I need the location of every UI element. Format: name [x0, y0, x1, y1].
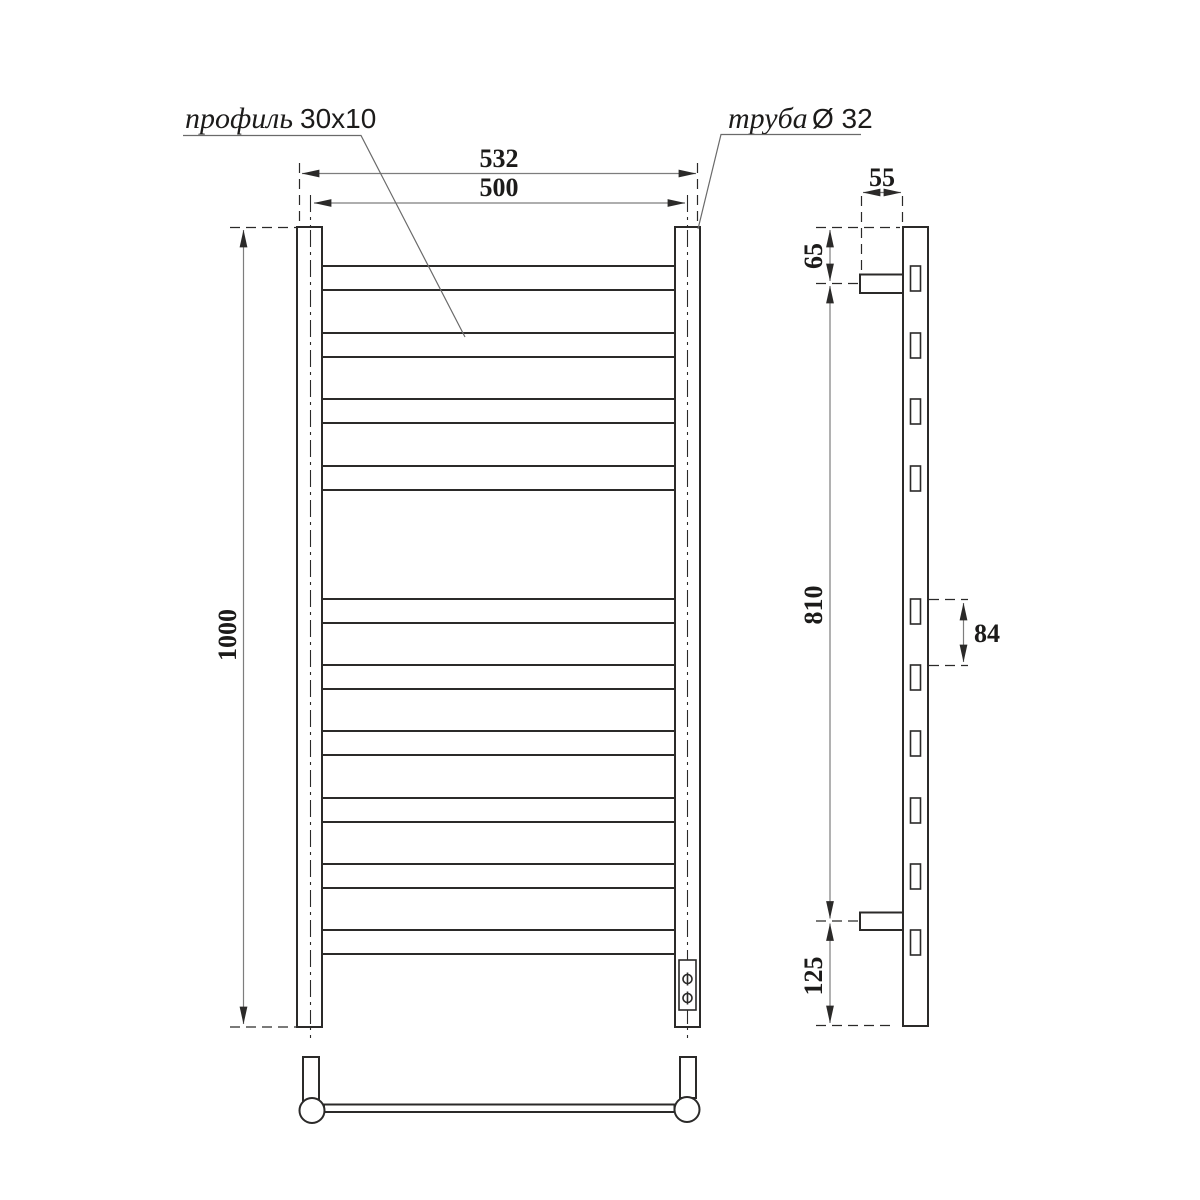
right-post-section: [675, 1097, 700, 1122]
dimension-height: 1000: [213, 228, 296, 1028]
dimension-value-65: 65: [799, 243, 828, 269]
bottom-view: [300, 1057, 700, 1123]
rung-group: [322, 266, 675, 954]
rung-slot: [911, 731, 921, 756]
dimension-value-55: 55: [869, 163, 895, 192]
leader-line-profile: [183, 136, 465, 338]
callout-pipe-value: Ø 32: [812, 103, 873, 134]
dimension-value-1000: 1000: [213, 609, 242, 661]
dimension-bracket-span: 810: [799, 286, 830, 919]
rung-slot: [911, 864, 921, 889]
dimension-value-500: 500: [480, 173, 519, 202]
rung: [322, 930, 675, 954]
towel-rail-technical-drawing: 532 500 1000 профиль 30x10 труба Ø 32: [0, 0, 1200, 1200]
dimension-value-532: 532: [480, 144, 519, 173]
drawing-page: 532 500 1000 профиль 30x10 труба Ø 32: [0, 0, 1200, 1200]
dimension-bracket-depth: 55: [862, 163, 903, 273]
bottom-wall-bracket: [860, 913, 904, 931]
rung-slot: [911, 333, 921, 358]
rung-slot: [911, 466, 921, 491]
rung: [322, 599, 675, 623]
callout-pipe: труба Ø 32: [698, 102, 873, 229]
leader-line-pipe: [698, 135, 861, 230]
rung: [322, 665, 675, 689]
rung-profile-top-view: [324, 1105, 675, 1113]
rung: [322, 731, 675, 755]
dimension-axis-width: 500: [314, 173, 685, 203]
rung: [322, 333, 675, 357]
callout-profile-value: 30x10: [300, 103, 376, 134]
right-bracket-top-view: [680, 1057, 696, 1098]
rung: [322, 266, 675, 290]
rung-slot: [911, 266, 921, 291]
rung: [322, 864, 675, 888]
callout-pipe-label: труба: [728, 102, 808, 135]
top-wall-bracket: [860, 275, 904, 294]
callout-profile: профиль 30x10: [183, 102, 465, 337]
dimension-value-125: 125: [799, 957, 828, 996]
rung: [322, 399, 675, 423]
front-view: 532 500 1000 профиль 30x10 труба Ø 32: [183, 102, 873, 1038]
dimension-value-810: 810: [799, 586, 828, 625]
electrical-box: [679, 960, 696, 1010]
left-post-section: [300, 1098, 325, 1123]
rung: [322, 466, 675, 490]
dimension-value-84: 84: [974, 619, 1000, 648]
left-bracket-top-view: [303, 1057, 319, 1102]
dimension-top-offset: 65: [799, 230, 830, 281]
rung-slot: [911, 399, 921, 424]
callout-profile-label: профиль: [185, 102, 293, 135]
rung-slot: [911, 798, 921, 823]
left-post: [297, 227, 322, 1027]
side-view: 55 65 810 125 84: [799, 163, 1000, 1026]
rung-slot: [911, 599, 921, 624]
dimension-bottom-offset: 125: [799, 924, 830, 1024]
rung-slot: [911, 930, 921, 955]
rung-slot: [911, 665, 921, 690]
rung: [322, 798, 675, 822]
dimension-rung-pitch: 84: [929, 600, 1000, 666]
